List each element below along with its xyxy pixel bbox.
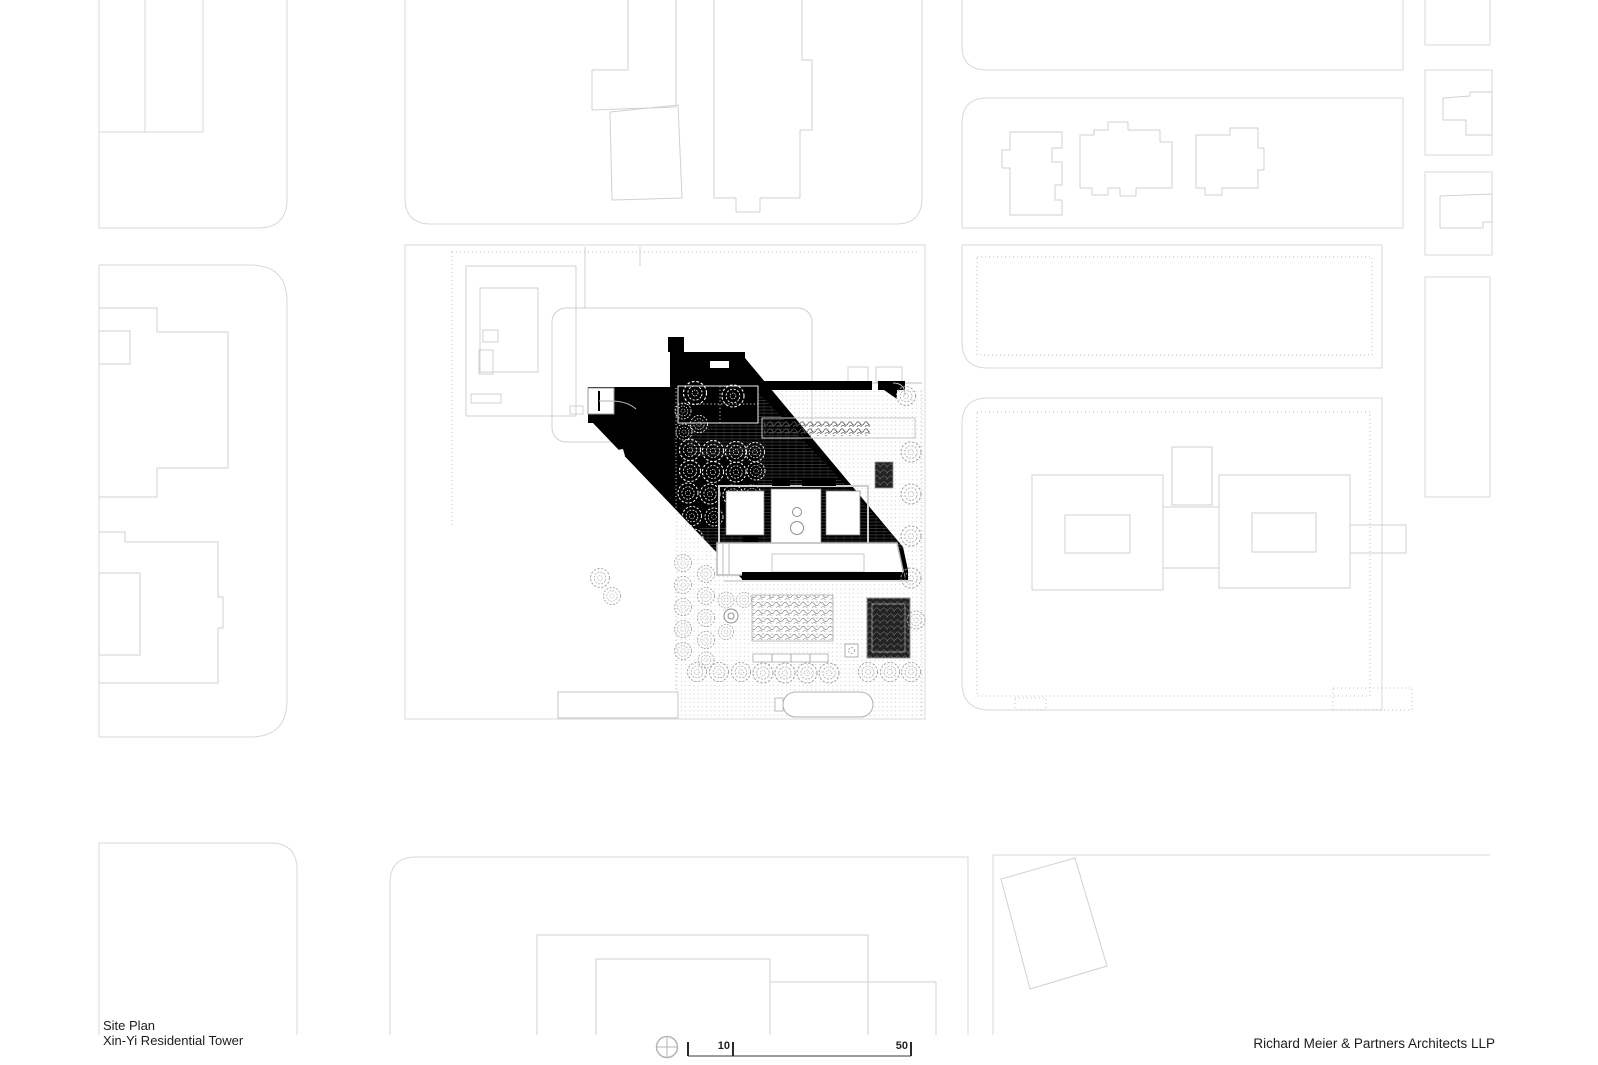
scale-label-10: 10 (690, 1040, 730, 1052)
project-name: Xin-Yi Residential Tower (103, 1033, 243, 1048)
garden-dark (867, 598, 910, 658)
roof-vent-large (791, 522, 804, 535)
site-plan-canvas: Site PlanXin-Yi Residential Tower Richar… (0, 0, 1598, 1065)
title-block: Site PlanXin-Yi Residential Tower (103, 1019, 243, 1048)
podium-slab (717, 543, 904, 575)
fountain (724, 609, 738, 623)
site-plan-drawing (0, 0, 1598, 1065)
garden-bed (752, 595, 833, 641)
scale-label-50: 50 (868, 1040, 908, 1052)
north-symbol-icon (657, 1037, 678, 1058)
service-slab (558, 692, 678, 718)
firm-name: Richard Meier & Partners Architects LLP (1095, 1037, 1495, 1052)
roof-vent-small (793, 508, 802, 517)
hedge-band (764, 420, 870, 436)
planter-dark (875, 462, 893, 488)
podium-edge (742, 572, 904, 580)
bench (753, 654, 828, 662)
drawing-title: Site Plan (103, 1018, 155, 1033)
drop-off-pool (783, 692, 873, 717)
